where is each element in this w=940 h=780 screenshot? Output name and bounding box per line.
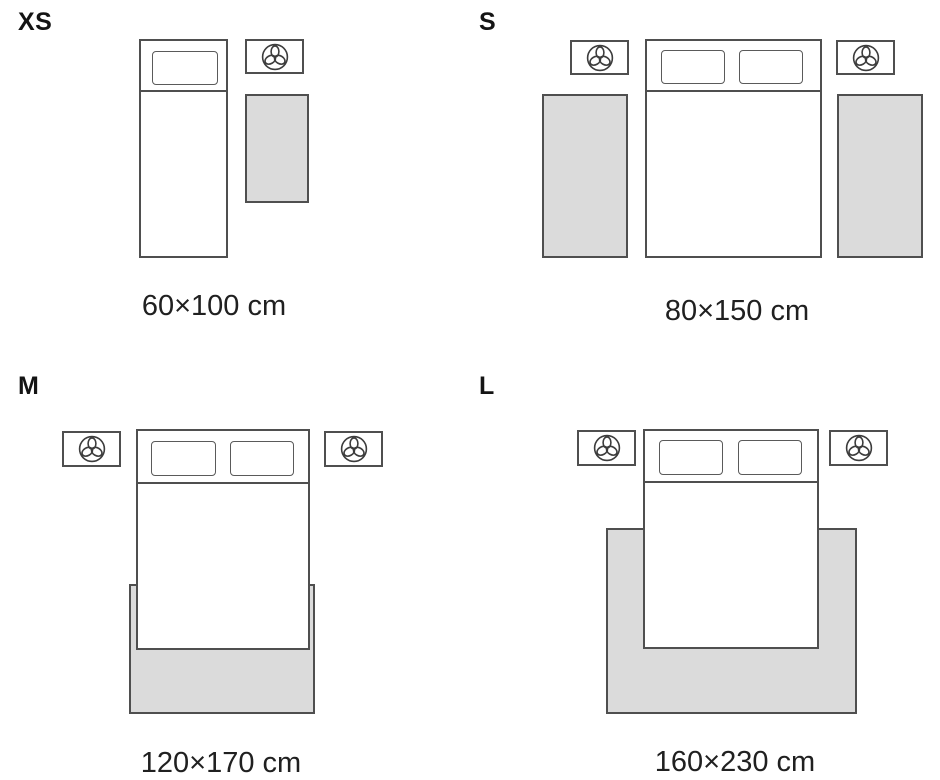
bed-headboard <box>138 431 308 484</box>
plant-top-view-icon <box>592 433 622 463</box>
size-label-xs: XS <box>18 10 52 35</box>
pillow <box>739 50 803 84</box>
pillow <box>659 440 723 475</box>
plant-top-view-icon <box>260 42 290 72</box>
pillow <box>151 441 216 476</box>
pillow <box>230 441 294 476</box>
rug-s-left <box>542 94 628 258</box>
dimension-label-xs: 60×100 cm <box>142 292 286 321</box>
nightstand-s-left <box>570 40 629 75</box>
plant-top-view-icon <box>844 433 874 463</box>
dimension-label-l: 160×230 cm <box>655 748 815 777</box>
bed-headboard <box>141 41 226 92</box>
plant-top-view-icon <box>339 434 369 464</box>
rug-xs <box>245 94 309 203</box>
rug-s-right <box>837 94 923 258</box>
nightstand-m-left <box>62 431 121 467</box>
nightstand-s-right <box>836 40 895 75</box>
nightstand-l-right <box>829 430 888 466</box>
plant-top-view-icon <box>585 43 615 73</box>
nightstand-l-left <box>577 430 636 466</box>
double-bed-l <box>643 429 819 649</box>
pillow <box>661 50 725 84</box>
dimension-label-s: 80×150 cm <box>665 297 809 326</box>
double-bed-m <box>136 429 310 650</box>
single-bed-xs <box>139 39 228 258</box>
size-label-m: M <box>18 374 39 399</box>
rug-size-guide: XS 60×100 cm S 80×150 cm M <box>0 0 940 780</box>
size-label-l: L <box>479 374 495 399</box>
size-label-s: S <box>479 10 496 35</box>
dimension-label-m: 120×170 cm <box>141 749 301 778</box>
pillow <box>152 51 218 85</box>
bed-headboard <box>647 41 820 92</box>
plant-top-view-icon <box>77 434 107 464</box>
pillow <box>738 440 802 475</box>
bed-headboard <box>645 431 817 483</box>
double-bed-s <box>645 39 822 258</box>
plant-top-view-icon <box>851 43 881 73</box>
nightstand-xs <box>245 39 304 74</box>
nightstand-m-right <box>324 431 383 467</box>
